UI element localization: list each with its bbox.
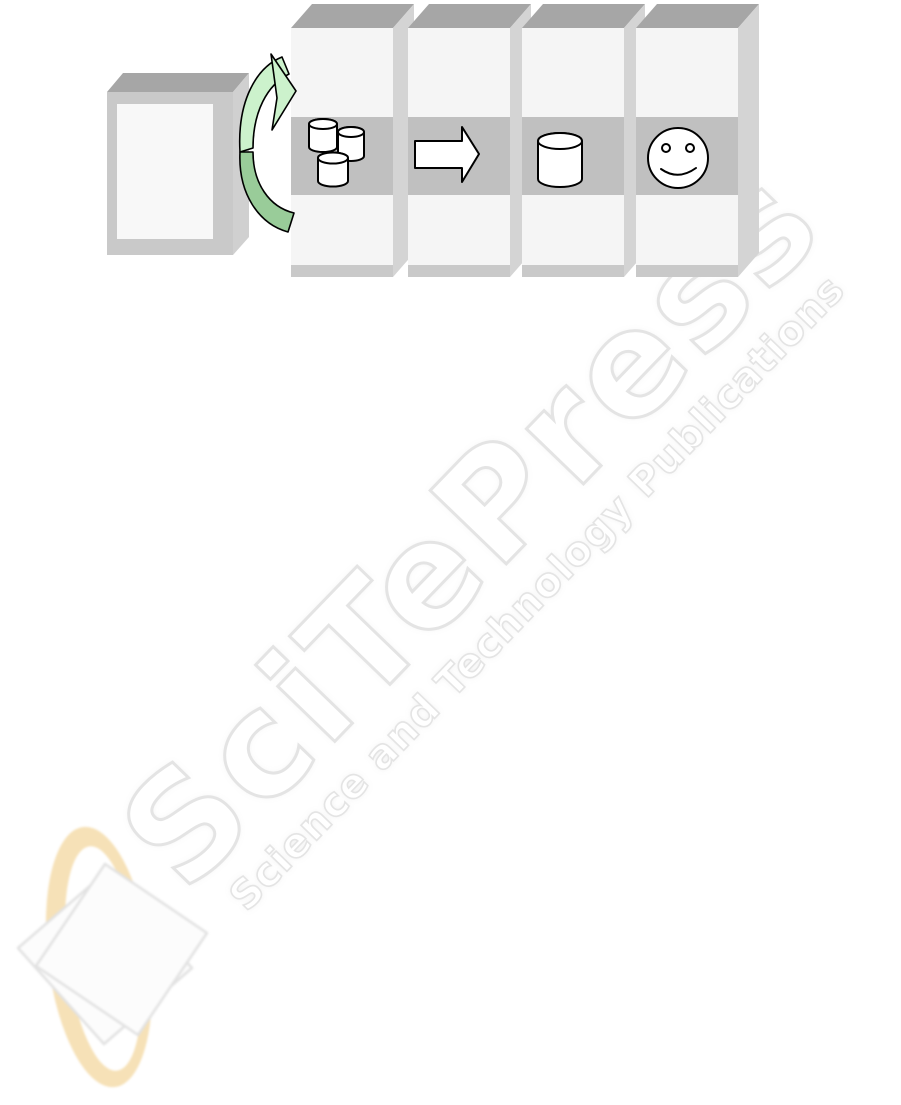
panel-bottom-lip [291,265,393,277]
panel-top-face [636,4,759,28]
source-box-top-face [107,73,249,92]
panel-side-face [738,4,759,277]
panel-top-face [408,4,531,28]
paper-page: SciTePress Science and Technology Public… [0,0,901,1105]
process-diagram-figure [0,0,820,300]
panel-bottom-lip [408,265,510,277]
source-box [107,73,249,255]
panel-bottom-lip [636,265,738,277]
layer-panel-3 [522,4,645,277]
publisher-logo [0,780,260,1105]
source-box-panel [117,104,213,239]
watermark-tagline: Science and Technology Publications [223,269,852,918]
user-smiley-icon [648,128,708,188]
layer-panel-4 [636,4,759,277]
layer-panel-2 [408,4,531,277]
panel-top-face [291,4,414,28]
layer-panel-1 [291,4,414,277]
panel-top-face [522,4,645,28]
panel-bottom-lip [522,265,624,277]
database-icon [538,133,582,187]
